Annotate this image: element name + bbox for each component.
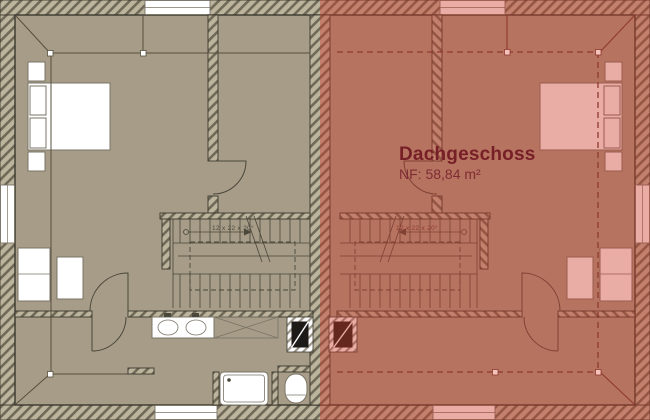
- double-sink: [152, 313, 214, 338]
- floorplan-canvas: Dachgeschoss NF: 58,84 m² 12 x 22 x 20° …: [0, 0, 650, 420]
- floor-title: Dachgeschoss: [399, 144, 536, 166]
- stair-dimension-label-right: 12 x 22 x 20°: [385, 226, 449, 233]
- stair-dimension-label-left: 12 x 22 x 20°: [201, 226, 265, 233]
- selected-unit-overlay[interactable]: [320, 0, 650, 420]
- floor-area-label: NF: 58,84 m²: [399, 166, 481, 182]
- shower: [220, 372, 268, 405]
- chimney-left: [287, 317, 313, 352]
- toilet: [285, 374, 307, 403]
- floorplan-drawing: [0, 0, 650, 420]
